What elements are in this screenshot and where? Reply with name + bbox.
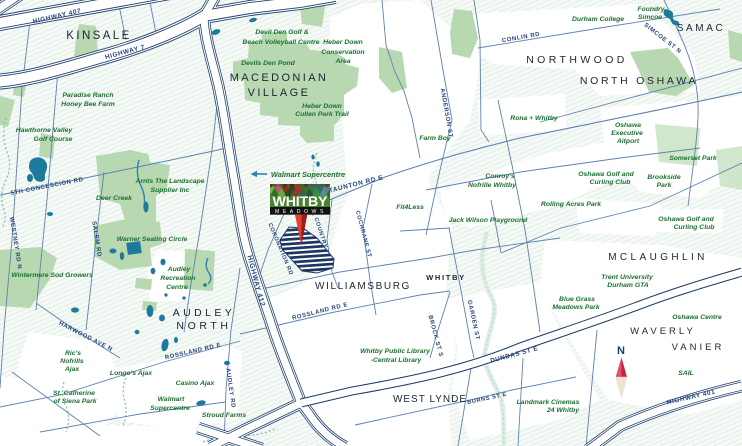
- svg-text:Jack Wilson Playground: Jack Wilson Playground: [449, 217, 528, 224]
- svg-text:Heber Down: Heber Down: [323, 39, 363, 46]
- svg-text:Somerset Park: Somerset Park: [669, 155, 718, 162]
- svg-text:Arnts The Landscape: Arnts The Landscape: [134, 178, 204, 185]
- svg-text:Deer Creek: Deer Creek: [96, 195, 133, 202]
- svg-text:Casino Ajax: Casino Ajax: [176, 380, 216, 387]
- svg-text:MEADOWS: MEADOWS: [275, 209, 326, 215]
- svg-text:Durham College: Durham College: [572, 16, 624, 23]
- svg-text:Rona + Whitby: Rona + Whitby: [510, 115, 559, 122]
- svg-text:of Siena Park: of Siena Park: [53, 398, 97, 405]
- svg-text:Devil Den Golf &: Devil Den Golf &: [255, 29, 308, 36]
- svg-text:Longo's Ajax: Longo's Ajax: [110, 370, 153, 377]
- svg-text:Simcoe: Simcoe: [638, 14, 662, 21]
- svg-text:Ric's: Ric's: [65, 350, 81, 357]
- svg-text:Conservation: Conservation: [321, 49, 364, 56]
- svg-text:NORTHWOOD: NORTHWOOD: [526, 54, 628, 66]
- svg-text:Brookside: Brookside: [647, 174, 680, 181]
- svg-text:Fit4Less: Fit4Less: [396, 204, 424, 211]
- svg-text:SAMAC: SAMAC: [677, 23, 726, 34]
- svg-text:Foundry: Foundry: [637, 6, 665, 13]
- svg-text:Trent University: Trent University: [601, 274, 654, 281]
- svg-text:Centre: Centre: [166, 284, 188, 291]
- svg-text:Nofrills: Nofrills: [60, 358, 84, 365]
- svg-text:Heber Down: Heber Down: [302, 103, 342, 110]
- svg-text:KINSALE: KINSALE: [66, 30, 131, 42]
- svg-text:N: N: [617, 345, 625, 357]
- svg-text:WHITBY: WHITBY: [273, 194, 329, 210]
- svg-text:Wintermere Sod Growers: Wintermere Sod Growers: [11, 272, 93, 279]
- svg-text:NORTH OSHAWA: NORTH OSHAWA: [580, 75, 698, 87]
- svg-text:WHITBY: WHITBY: [426, 273, 466, 282]
- svg-text:Supplier Inc: Supplier Inc: [151, 187, 190, 194]
- svg-text:24 Whitby: 24 Whitby: [546, 407, 580, 414]
- svg-text:Farm Boy: Farm Boy: [419, 135, 452, 142]
- svg-text:VANIER: VANIER: [672, 342, 725, 353]
- svg-text:Audley: Audley: [167, 266, 192, 273]
- svg-text:Nofrille Whitby: Nofrille Whitby: [468, 182, 517, 189]
- svg-text:Meadows Park: Meadows Park: [552, 304, 600, 311]
- svg-text:Landmark Cinemas: Landmark Cinemas: [517, 399, 580, 406]
- svg-text:Paradise Ranch: Paradise Ranch: [63, 92, 114, 99]
- svg-text:Hawthorne Valley: Hawthorne Valley: [16, 127, 74, 134]
- svg-text:Durham GTA: Durham GTA: [607, 282, 649, 289]
- svg-text:MCLAUGHLIN: MCLAUGHLIN: [608, 252, 708, 263]
- svg-text:WILLIAMSBURG: WILLIAMSBURG: [315, 281, 411, 292]
- svg-text:Recreation: Recreation: [160, 275, 195, 282]
- svg-text:Executive: Executive: [611, 130, 643, 137]
- svg-text:Beach Volleyball Centre: Beach Volleyball Centre: [242, 39, 319, 46]
- svg-text:WAVERLY: WAVERLY: [630, 326, 696, 337]
- svg-text:St. Catherine: St. Catherine: [53, 390, 95, 397]
- svg-text:Rolling Acres Park: Rolling Acres Park: [541, 201, 602, 208]
- svg-text:SAIL: SAIL: [678, 370, 693, 377]
- svg-text:Walmart: Walmart: [158, 396, 185, 403]
- svg-text:Golf Course: Golf Course: [34, 136, 73, 143]
- svg-text:-Central Library: -Central Library: [371, 357, 423, 364]
- svg-text:NORTH: NORTH: [176, 320, 231, 332]
- svg-text:Whitby Publíc Library: Whitby Publíc Library: [360, 348, 431, 355]
- svg-text:Stroud Farms: Stroud Farms: [202, 412, 246, 419]
- svg-text:Oshawa Golf and: Oshawa Golf and: [658, 216, 714, 223]
- svg-text:Oshawa Golf and: Oshawa Golf and: [578, 171, 634, 178]
- svg-text:Oshawa Centre: Oshawa Centre: [672, 314, 722, 321]
- svg-text:Supercentre: Supercentre: [150, 405, 190, 412]
- svg-text:Blue Grass: Blue Grass: [559, 296, 595, 303]
- svg-text:Honey Bee Farm: Honey Bee Farm: [61, 101, 115, 108]
- svg-text:Conroy's: Conroy's: [485, 173, 514, 180]
- svg-text:Area: Area: [334, 58, 350, 65]
- svg-text:Devils Den Pond: Devils Den Pond: [241, 60, 295, 67]
- svg-text:Cullen Park Trail: Cullen Park Trail: [295, 111, 349, 118]
- svg-text:Aitport: Aitport: [616, 138, 640, 145]
- svg-text:Park: Park: [657, 182, 673, 189]
- svg-text:Oshawa: Oshawa: [615, 122, 641, 129]
- svg-text:Curling Club: Curling Club: [674, 224, 715, 231]
- svg-text:WEST LYNDE: WEST LYNDE: [393, 394, 467, 405]
- svg-text:AUDLEY: AUDLEY: [173, 307, 235, 319]
- svg-text:Walmart Supercentre: Walmart Supercentre: [271, 170, 345, 179]
- svg-text:Ajax: Ajax: [64, 366, 81, 373]
- svg-text:MACEDONIAN: MACEDONIAN: [230, 72, 329, 84]
- svg-text:Warner Seating Circle: Warner Seating Circle: [117, 236, 188, 243]
- svg-text:Curling Club: Curling Club: [590, 179, 631, 186]
- svg-text:VILLAGE: VILLAGE: [248, 87, 311, 99]
